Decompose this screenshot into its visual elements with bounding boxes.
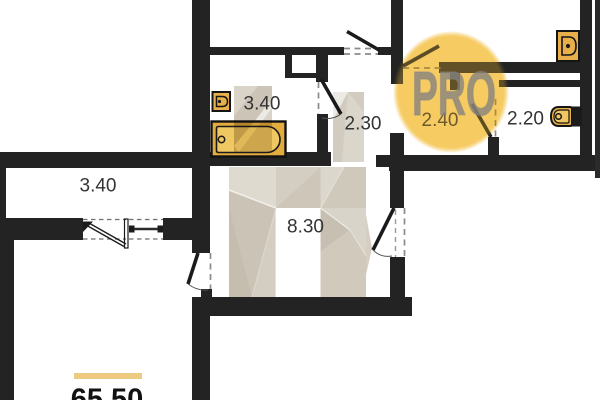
svg-text:3.40: 3.40 (244, 94, 281, 115)
svg-text:65,50: 65,50 (71, 384, 144, 400)
svg-text:PRO: PRO (412, 60, 496, 129)
svg-text:8.30: 8.30 (287, 217, 324, 238)
svg-text:2.30: 2.30 (345, 114, 382, 135)
svg-text:2.20: 2.20 (507, 109, 544, 130)
svg-text:3.40: 3.40 (80, 176, 117, 197)
